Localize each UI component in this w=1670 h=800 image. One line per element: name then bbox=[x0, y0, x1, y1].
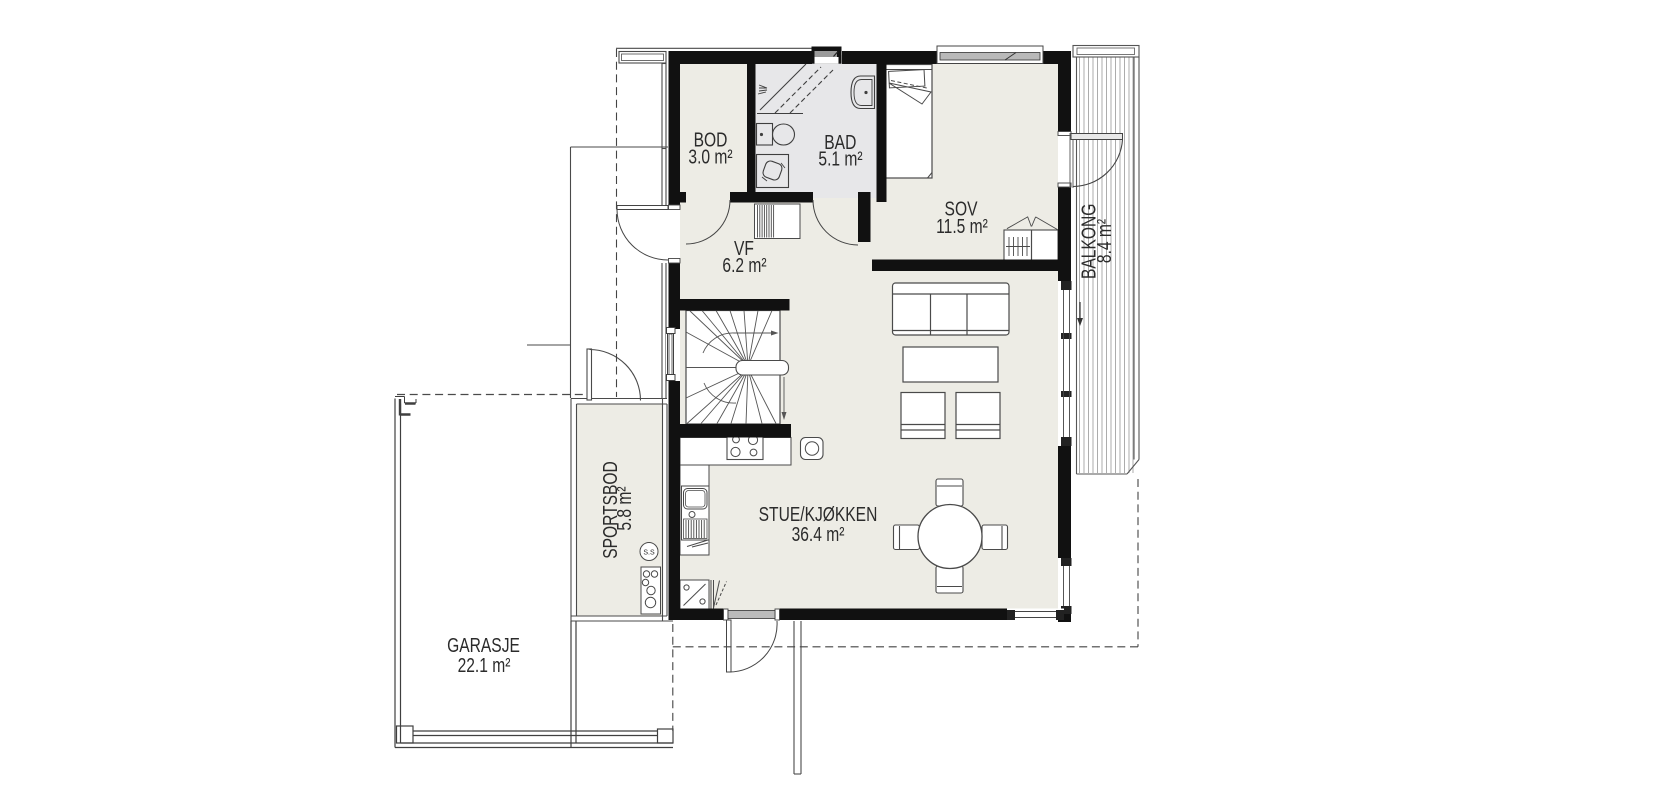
svg-text:S.S: S.S bbox=[643, 550, 655, 557]
svg-text:22.1 m²: 22.1 m² bbox=[458, 654, 511, 676]
svg-text:5.8 m²: 5.8 m² bbox=[613, 486, 635, 530]
svg-text:5.1 m²: 5.1 m² bbox=[818, 147, 862, 169]
svg-text:STUE/KJØKKEN: STUE/KJØKKEN bbox=[759, 503, 878, 525]
svg-text:11.5 m²: 11.5 m² bbox=[936, 215, 988, 237]
svg-text:8.4 m²: 8.4 m² bbox=[1093, 219, 1115, 263]
svg-text:GARASJE: GARASJE bbox=[447, 634, 520, 656]
svg-text:36.4 m²: 36.4 m² bbox=[792, 523, 845, 545]
svg-text:6.2 m²: 6.2 m² bbox=[722, 254, 766, 276]
svg-text:3.0 m²: 3.0 m² bbox=[688, 146, 732, 168]
